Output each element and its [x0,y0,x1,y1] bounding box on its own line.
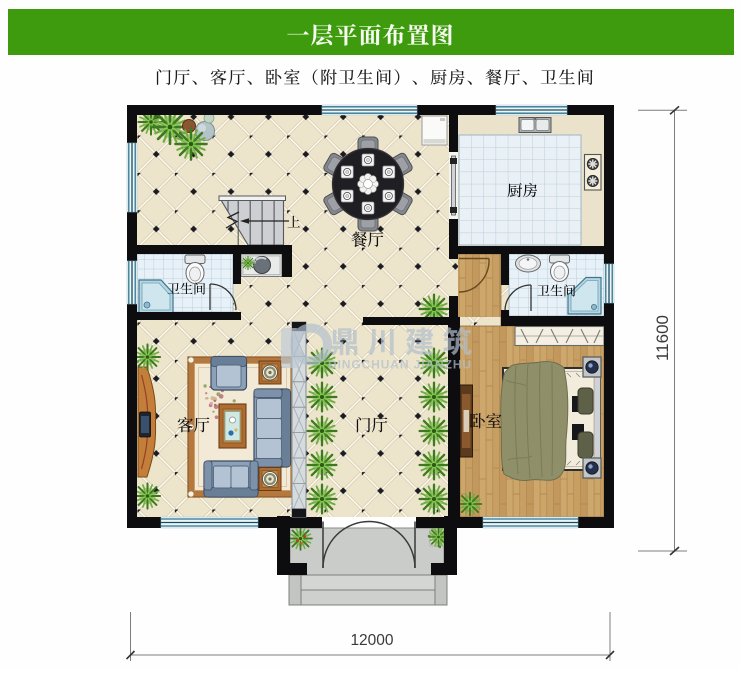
svg-text:DINGCHUAN JIANZHU: DINGCHUAN JIANZHU [328,358,472,372]
svg-text:11600: 11600 [653,315,672,361]
svg-text:12000: 12000 [350,632,393,649]
